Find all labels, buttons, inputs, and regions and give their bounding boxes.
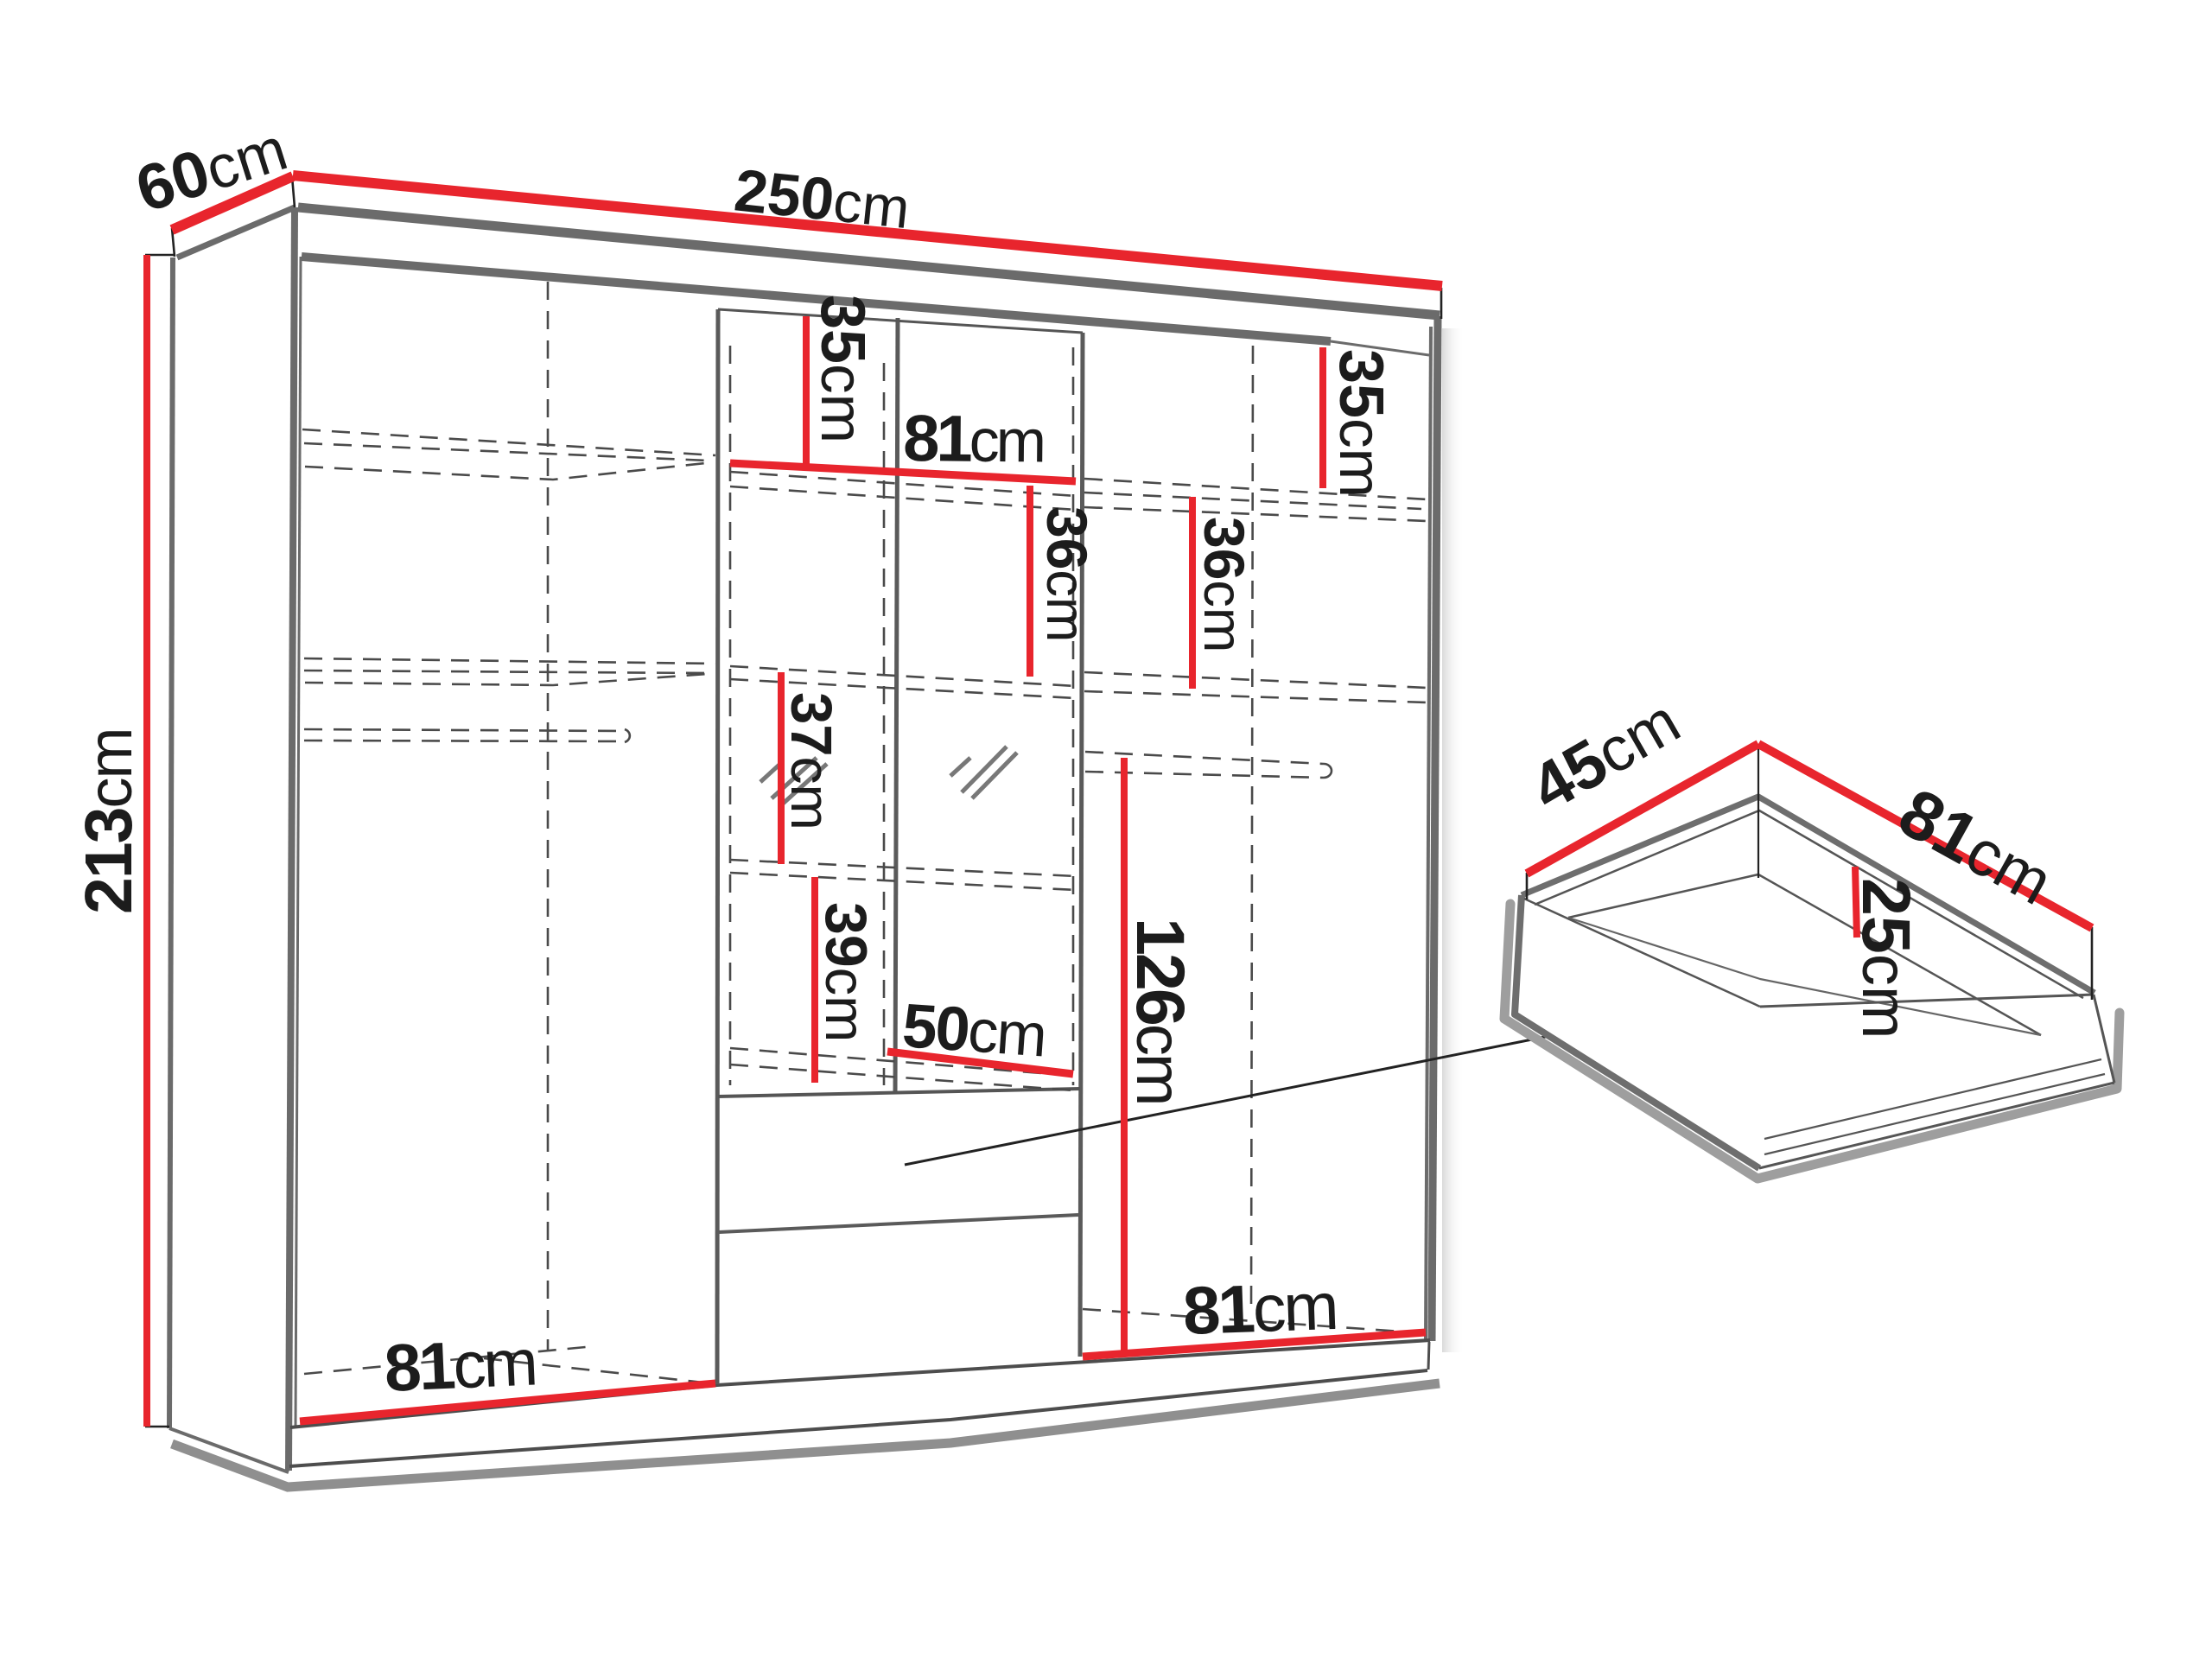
svg-text:81cm: 81cm	[1182, 1268, 1338, 1349]
svg-text:213cm: 213cm	[72, 729, 146, 914]
svg-text:39cm: 39cm	[813, 902, 879, 1042]
svg-text:37cm: 37cm	[779, 692, 843, 830]
svg-text:35cm: 35cm	[1326, 349, 1395, 498]
svg-text:50cm: 50cm	[900, 991, 1048, 1070]
svg-text:81cm: 81cm	[903, 402, 1044, 476]
svg-text:126cm: 126cm	[1122, 918, 1199, 1103]
svg-text:36cm: 36cm	[1192, 517, 1256, 652]
svg-text:35cm: 35cm	[808, 295, 877, 443]
svg-text:25cm: 25cm	[1848, 878, 1925, 1039]
svg-text:81cm: 81cm	[383, 1325, 537, 1406]
svg-text:36cm: 36cm	[1035, 506, 1099, 642]
